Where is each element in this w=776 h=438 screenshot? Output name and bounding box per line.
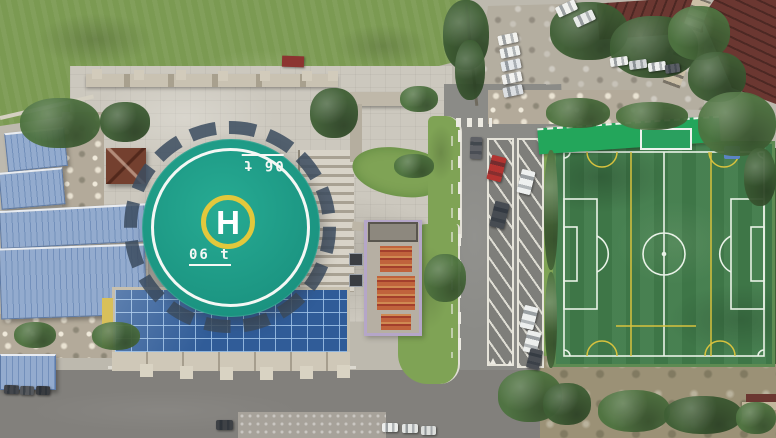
red-structure [282,56,304,68]
crosswalk-marking [456,118,492,127]
road-arrow [507,360,513,374]
facade-pillars [140,364,153,377]
rooftop-unit-1 [349,253,363,266]
field-markings [556,144,772,364]
blue-shed-5 [0,354,56,390]
wall-fragment-tan [742,402,776,410]
stand-structure [640,128,692,150]
aerial-photo-scene: H 06 t 06 t [0,0,776,438]
scaffold-stack-1 [380,246,412,272]
road-arrow [490,358,496,372]
parking-strip-left [487,138,514,366]
helipad-weight-marking: 06 t [189,247,231,266]
balustrade-wall [86,74,338,87]
lane-dashed-line-2 [451,136,453,358]
blue-shed-1 [4,127,68,172]
balustrade-posts [92,69,102,79]
yellow-edge-strip [102,298,113,348]
rooftop-unit-2 [349,274,363,287]
helipad-deck: H 06 t 06 t [142,139,320,317]
lane-dashed-line [458,130,461,362]
dirt-scrub-area [540,356,776,438]
scaffold-stack-2 [377,276,415,310]
blue-container [724,146,740,159]
blue-shed-2 [0,167,65,209]
helipad-center-circle: H [201,195,255,249]
sidewalk [238,412,386,438]
lawn-strip-upper [428,116,462,238]
helipad-weight-marking-rotated: 06 t [242,154,284,173]
construction-roof-section [368,222,418,242]
scaffold-stack-3 [381,314,411,330]
debris-area-lot-edge [488,90,640,124]
debris-area-left [62,112,104,207]
helipad-letter: H [216,206,240,239]
maroon-roof-building-b [702,0,776,104]
parking-strip-right [517,138,544,368]
football-pitch [556,144,772,364]
